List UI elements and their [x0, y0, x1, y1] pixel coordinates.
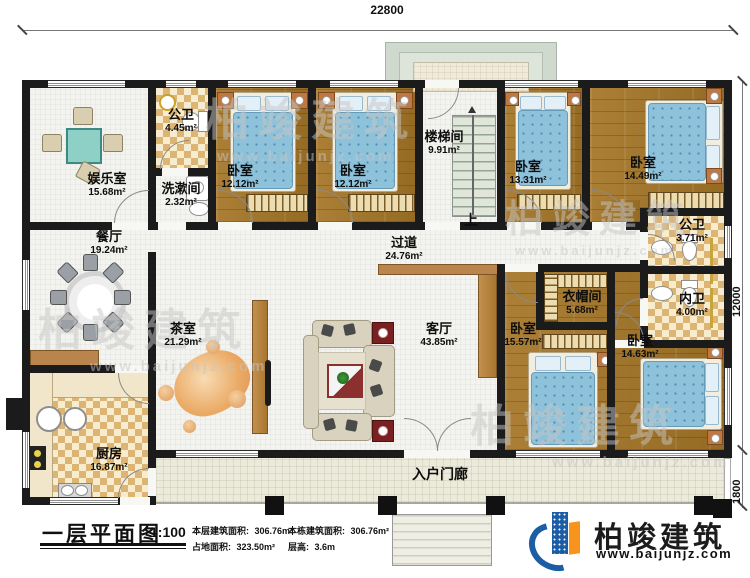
- cloakroom-wardrobe: [556, 274, 608, 288]
- wall: [497, 264, 505, 458]
- window: [724, 226, 732, 258]
- door-gap: [218, 222, 252, 230]
- door-gap: [158, 222, 186, 230]
- room-label-public-bath1: 公卫 4.45m²: [150, 108, 212, 134]
- nightstand: [707, 430, 723, 445]
- window: [628, 80, 706, 88]
- tea-stool: [228, 390, 246, 408]
- room-label-bedroom-a: 卧室 12.12m²: [205, 164, 275, 190]
- door-gap: [640, 232, 648, 260]
- window: [176, 450, 258, 458]
- chair: [83, 254, 98, 271]
- wall: [582, 80, 590, 230]
- nightstand: [291, 92, 308, 109]
- kitchen-basin: [63, 407, 87, 431]
- chair: [114, 290, 131, 305]
- room-label-stairwell: 楼梯间 9.91m²: [408, 130, 480, 156]
- window: [22, 432, 30, 488]
- staircase-arrow: [468, 106, 476, 113]
- title-underline: [40, 543, 186, 546]
- door-gap: [507, 222, 541, 230]
- kitchen-counter-left: [30, 373, 53, 497]
- porch-column: [378, 496, 397, 515]
- window: [166, 80, 196, 88]
- bed: [640, 358, 722, 430]
- dimension-label-right: 12000: [731, 255, 743, 317]
- kitchen-basin: [36, 406, 62, 432]
- room-label-bedroom-d: 卧室 14.49m²: [608, 156, 678, 182]
- room-label-dining: 餐厅 19.24m²: [75, 230, 143, 256]
- door-gap: [505, 264, 538, 272]
- room-label-inner-bath: 内卫 4.00m²: [662, 292, 722, 318]
- chair: [50, 290, 67, 305]
- nightstand: [396, 92, 413, 109]
- room-label-entertainment: 娱乐室 15.68m²: [62, 172, 152, 198]
- room-label-kitchen: 厨房 16.87m²: [75, 447, 143, 473]
- company-logo-url: www.baijunjz.com: [596, 546, 732, 561]
- door-gap: [148, 468, 156, 496]
- nightstand: [217, 92, 234, 109]
- window: [724, 368, 732, 425]
- stat-building-area: 本栋建筑面积: 306.76m²: [288, 524, 389, 537]
- porch-column: [265, 496, 284, 515]
- entrance-door-gap: [404, 450, 470, 458]
- door-gap: [120, 497, 150, 505]
- door-gap: [425, 222, 460, 230]
- stat-land-area: 占地面积: 323.50m²: [192, 540, 275, 553]
- sofa: [363, 345, 395, 417]
- window: [330, 80, 398, 88]
- room-label-bedroom-c: 卧室 13.31m²: [493, 160, 563, 186]
- dimension-line-top: [22, 30, 733, 31]
- door-gap: [318, 222, 352, 230]
- porch-column: [486, 496, 505, 515]
- end-table-lamp: [378, 426, 388, 436]
- room-label-living: 客厅 43.85m²: [400, 322, 478, 348]
- dimension-label-top: 22800: [352, 3, 422, 17]
- chair: [42, 134, 62, 152]
- floor-plan-canvas: 22800 12000 1800: [0, 0, 750, 578]
- room-label-bedroom-f: 卧室 14.63m²: [604, 334, 676, 360]
- porch-column: [694, 496, 713, 515]
- title-underline: [40, 548, 186, 549]
- door-gap: [162, 168, 188, 176]
- tea-stool: [183, 420, 196, 433]
- logo-building-orange: [569, 521, 580, 555]
- sink-bowl: [61, 485, 74, 496]
- window: [228, 80, 296, 88]
- room-label-bedroom-b: 卧室 12.12m²: [318, 164, 388, 190]
- room-label-tea-room: 茶室 21.29m²: [148, 322, 218, 348]
- door-gap: [115, 365, 148, 373]
- wall: [640, 208, 724, 216]
- room-label-entry-porch: 入户门廊: [392, 467, 488, 483]
- wall: [497, 80, 505, 230]
- stove-burner: [34, 450, 41, 457]
- stair-up-label: 上: [460, 213, 482, 229]
- sink-bowl: [75, 485, 88, 496]
- game-table: [66, 128, 102, 164]
- company-logo-icon: [528, 510, 588, 562]
- cushion: [343, 323, 356, 336]
- sofa: [303, 335, 319, 429]
- window: [48, 80, 125, 88]
- dimension-label-porch: 1800: [731, 462, 743, 504]
- window: [628, 450, 708, 458]
- room-label-cloakroom: 衣帽间 5.68m²: [546, 290, 618, 316]
- nightstand: [567, 92, 581, 106]
- window: [505, 80, 578, 88]
- chair: [73, 107, 93, 125]
- tea-stool: [158, 385, 174, 401]
- wall: [148, 252, 156, 373]
- wardrobe: [348, 194, 415, 212]
- stat-floor-area: 本层建筑面积: 306.76m²: [192, 524, 293, 537]
- room-label-public-bath2: 公卫 3.71m²: [662, 218, 722, 244]
- bed: [528, 352, 598, 448]
- table-plant: [337, 372, 349, 384]
- nightstand: [706, 88, 722, 104]
- window: [22, 260, 30, 310]
- nightstand: [318, 92, 335, 109]
- logo-building-blue: [552, 512, 568, 554]
- nightstand: [505, 92, 519, 106]
- door-gap: [425, 80, 459, 88]
- room-label-washroom: 洗漱间 2.32m²: [150, 182, 212, 208]
- wall: [308, 80, 316, 230]
- room-label-hallway: 过道 24.76m²: [368, 236, 440, 262]
- stove-burner: [34, 461, 41, 468]
- living-tv-wall: [378, 264, 499, 275]
- wall: [640, 208, 648, 348]
- window: [516, 450, 600, 458]
- plan-scale: 1:100: [150, 524, 186, 540]
- cushion: [345, 419, 358, 432]
- end-table-lamp: [378, 328, 388, 338]
- porch-right-edge: [724, 458, 731, 504]
- tv-screen: [265, 360, 271, 406]
- wall: [648, 266, 724, 274]
- entry-steps: [392, 514, 492, 566]
- towel-rail: [710, 238, 713, 284]
- window: [50, 497, 118, 505]
- nightstand: [706, 168, 722, 184]
- room-label-bedroom-e: 卧室 15.57m²: [490, 322, 556, 348]
- chair: [103, 134, 123, 152]
- chimney-block: [6, 398, 24, 430]
- chair: [83, 324, 98, 341]
- door-gap: [592, 222, 626, 230]
- wardrobe: [246, 194, 308, 212]
- stat-storey-height: 层高: 3.6m: [288, 540, 335, 553]
- sofa: [312, 413, 372, 441]
